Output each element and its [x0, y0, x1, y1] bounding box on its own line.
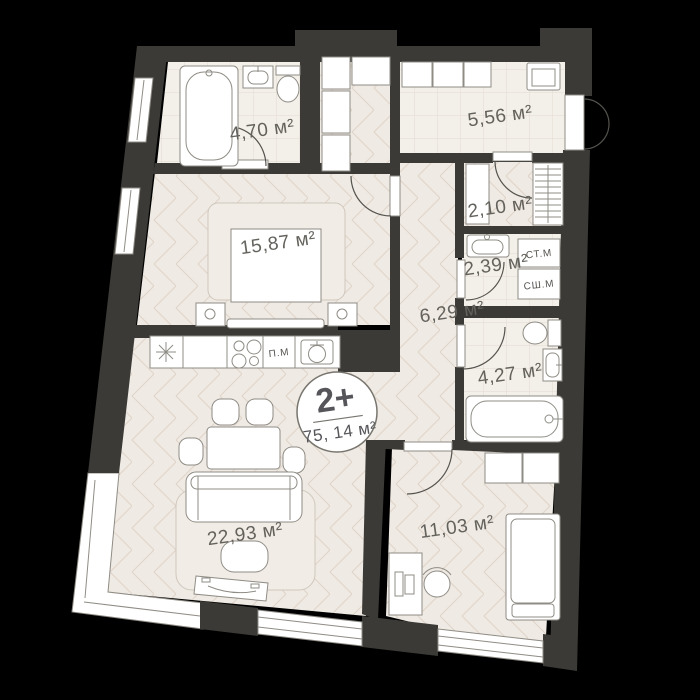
wall-bathroom-right [300, 46, 320, 172]
wardrobe [485, 453, 522, 483]
wall-bottom-corner [543, 634, 577, 671]
bathroom-sink [243, 66, 273, 88]
hallway-cabinets [402, 62, 560, 90]
sofa [186, 472, 302, 522]
wall-hall-closet-a [398, 153, 493, 163]
wall-right-upper [565, 62, 592, 96]
total-area-badge: 2+ 75, 14 м² [296, 372, 378, 452]
badge-rooms-count: 2+ [313, 378, 357, 421]
floorplan: 4,70 м² 5,56 м² 2,10 м² 2,39 м² 6,29 м² … [0, 0, 700, 700]
wc-toilet [523, 320, 561, 346]
nightstand-right [328, 303, 357, 326]
wc-bathtub [466, 396, 563, 442]
fridge-icon [156, 342, 176, 362]
wall-top-stub-1 [295, 30, 397, 48]
kitchen-counter [150, 336, 340, 368]
desk [389, 553, 422, 615]
wall-top-stub-2 [540, 28, 592, 48]
wall-hall-closet-b [532, 153, 565, 163]
toilet [276, 66, 300, 102]
single-bed [506, 514, 560, 620]
floor-corridor [396, 153, 458, 448]
label-dishwasher: П.М [268, 347, 290, 360]
bed-bench [227, 319, 324, 328]
wall-closet-laundry [455, 226, 563, 234]
bathtub [180, 66, 238, 166]
hallway-cabinet-unit [527, 63, 560, 90]
wall-kitchen-stub [338, 330, 400, 372]
floorplan-stage: 4,70 м² 5,56 м² 2,10 м² 2,39 м² 6,29 м² … [0, 0, 700, 700]
nightstand-left [196, 303, 225, 326]
closet-shelving [533, 163, 563, 225]
wall-bedroom-right-lower [390, 216, 400, 338]
wall-rooms-left-a [455, 163, 464, 258]
wall-rooms-left-c [455, 367, 464, 446]
wc-sink [543, 349, 562, 381]
dining-table [207, 427, 280, 469]
